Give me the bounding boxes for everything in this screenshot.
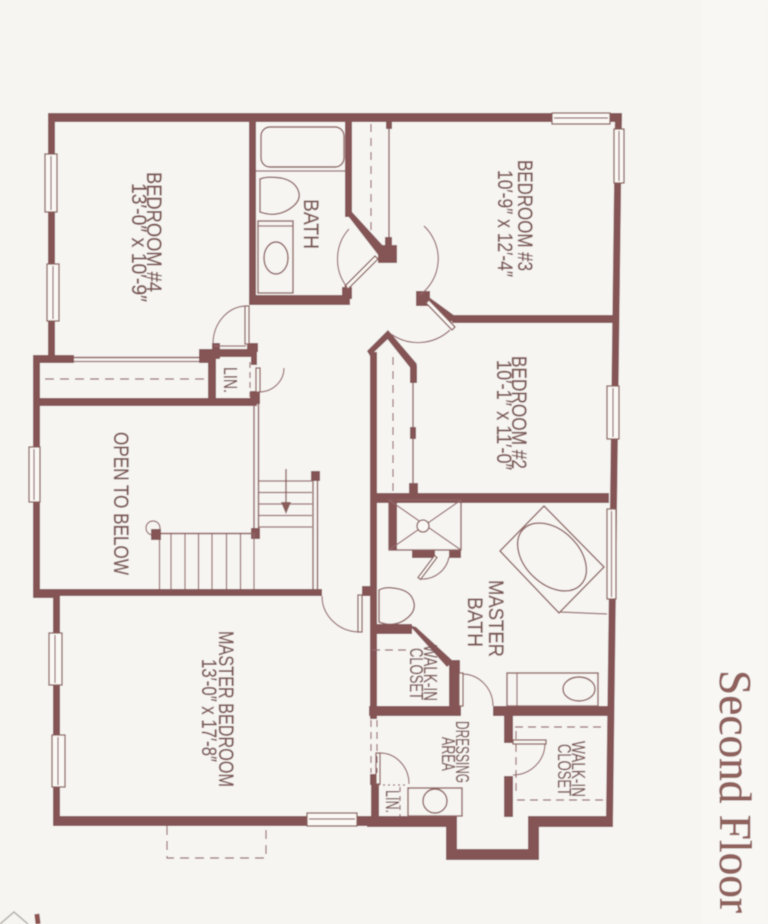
svg-text:13′-0″ x 17′-8″: 13′-0″ x 17′-8″	[197, 659, 220, 762]
svg-text:LIN.: LIN.	[382, 790, 402, 813]
svg-text:LIN.: LIN.	[220, 367, 240, 393]
svg-text:BATH: BATH	[299, 199, 322, 249]
svg-text:CLOSET: CLOSET	[554, 744, 574, 796]
svg-text:OPEN TO BELOW: OPEN TO BELOW	[109, 432, 132, 575]
svg-text:AREA: AREA	[438, 737, 458, 771]
svg-text:Second Floor: Second Floor	[710, 670, 761, 913]
svg-text:10′-1″ x 11′-0″: 10′-1″ x 11′-0″	[492, 360, 515, 470]
svg-text:CLOSET: CLOSET	[406, 648, 426, 700]
svg-text:13′-0″ x 10′-9″: 13′-0″ x 10′-9″	[127, 183, 150, 303]
svg-text:10′-9″ x 12′-4″: 10′-9″ x 12′-4″	[493, 170, 516, 277]
svg-text:BATH: BATH	[463, 597, 486, 647]
svg-text:MASTER: MASTER	[484, 580, 507, 657]
